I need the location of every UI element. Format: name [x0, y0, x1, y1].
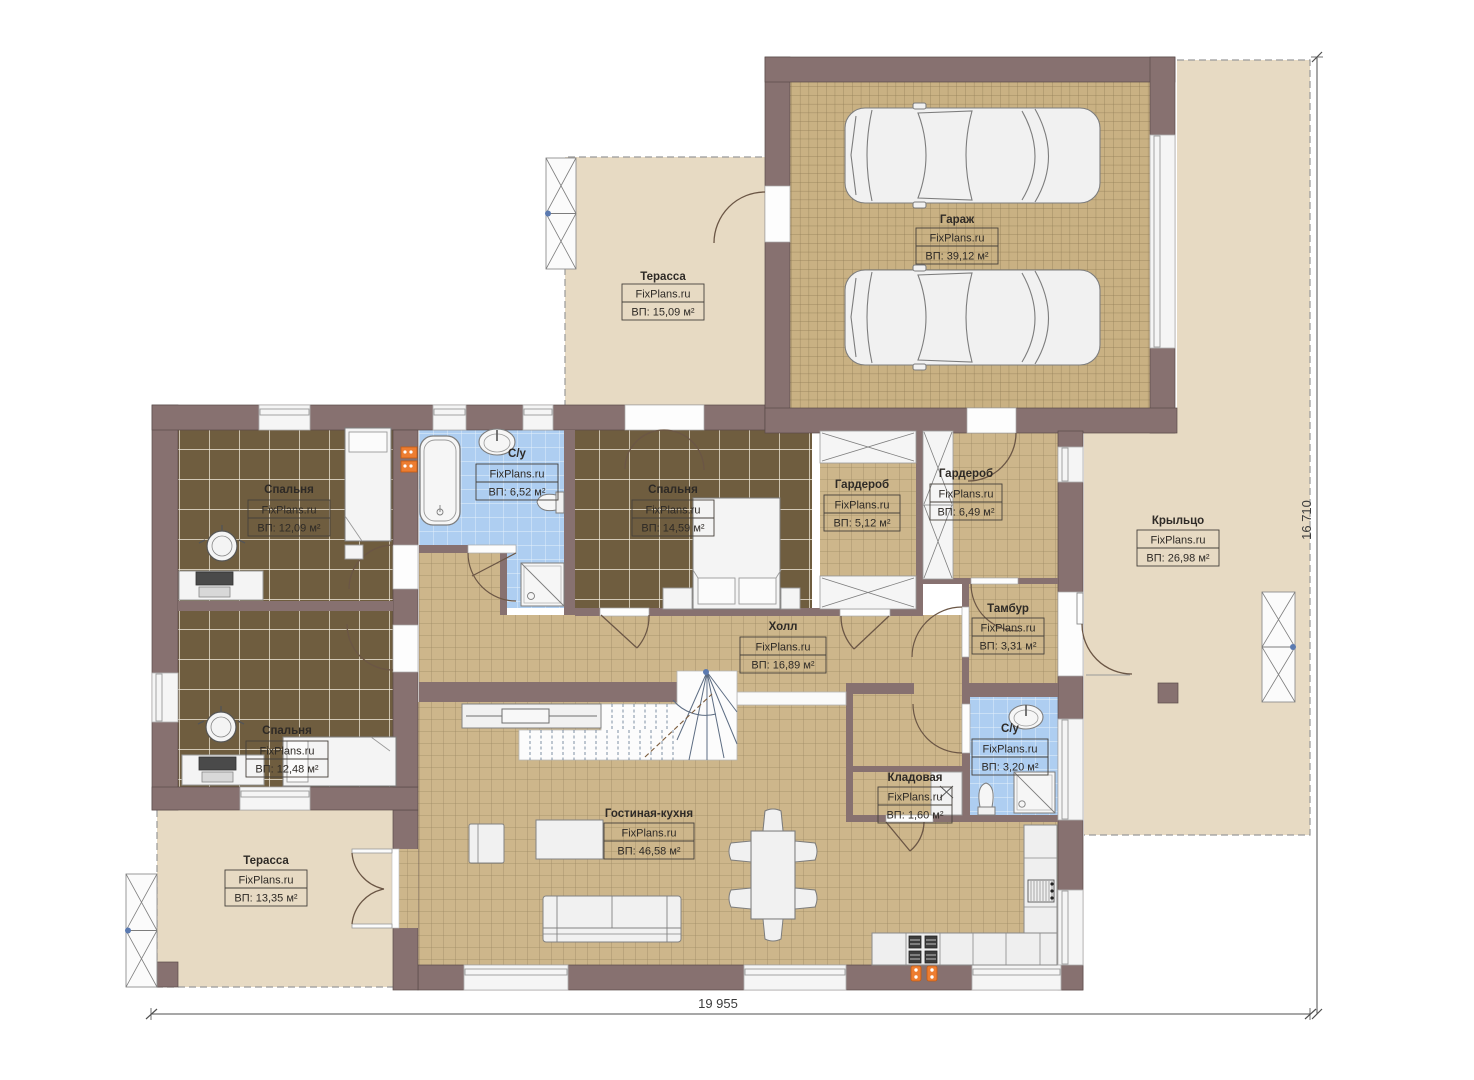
- svg-text:ВП: 5,12 м²: ВП: 5,12 м²: [833, 518, 890, 530]
- svg-text:Тамбур: Тамбур: [987, 603, 1029, 615]
- svg-text:Спальня: Спальня: [648, 484, 698, 496]
- svg-text:ВП: 3,20 м²: ВП: 3,20 м²: [981, 762, 1038, 774]
- svg-text:FixPlans.ru: FixPlans.ru: [259, 746, 314, 758]
- svg-text:FixPlans.ru: FixPlans.ru: [238, 875, 293, 887]
- svg-text:ВП: 12,48 м²: ВП: 12,48 м²: [255, 764, 319, 776]
- svg-text:ВП: 3,31 м²: ВП: 3,31 м²: [979, 641, 1036, 653]
- svg-text:Терасса: Терасса: [243, 855, 289, 867]
- svg-text:Гардероб: Гардероб: [835, 479, 889, 491]
- svg-text:ВП: 1,60 м²: ВП: 1,60 м²: [886, 810, 943, 822]
- svg-text:FixPlans.ru: FixPlans.ru: [982, 744, 1037, 756]
- svg-text:Спальня: Спальня: [262, 725, 312, 737]
- svg-text:ВП: 15,09 м²: ВП: 15,09 м²: [631, 307, 695, 319]
- svg-text:Гараж: Гараж: [940, 214, 975, 226]
- svg-text:Кладовая: Кладовая: [887, 772, 942, 784]
- svg-text:С/у: С/у: [1001, 723, 1020, 735]
- svg-text:Гостиная-кухня: Гостиная-кухня: [605, 808, 693, 820]
- svg-text:Крыльцо: Крыльцо: [1152, 515, 1204, 527]
- svg-text:Спальня: Спальня: [264, 484, 314, 496]
- svg-text:19 955: 19 955: [698, 996, 738, 1011]
- svg-text:FixPlans.ru: FixPlans.ru: [621, 828, 676, 840]
- svg-text:FixPlans.ru: FixPlans.ru: [261, 505, 316, 517]
- svg-text:FixPlans.ru: FixPlans.ru: [980, 623, 1035, 635]
- svg-text:FixPlans.ru: FixPlans.ru: [489, 469, 544, 481]
- svg-text:ВП: 6,49 м²: ВП: 6,49 м²: [937, 507, 994, 519]
- svg-text:FixPlans.ru: FixPlans.ru: [938, 489, 993, 501]
- svg-text:FixPlans.ru: FixPlans.ru: [887, 792, 942, 804]
- svg-text:FixPlans.ru: FixPlans.ru: [929, 233, 984, 245]
- svg-text:FixPlans.ru: FixPlans.ru: [1150, 535, 1205, 547]
- svg-text:ВП: 13,35 м²: ВП: 13,35 м²: [234, 893, 298, 905]
- svg-text:Холл: Холл: [769, 621, 798, 633]
- svg-text:ВП: 16,89 м²: ВП: 16,89 м²: [751, 660, 815, 672]
- svg-text:16 710: 16 710: [1299, 500, 1314, 540]
- svg-text:ВП: 39,12 м²: ВП: 39,12 м²: [925, 251, 989, 263]
- svg-text:FixPlans.ru: FixPlans.ru: [635, 289, 690, 301]
- svg-text:FixPlans.ru: FixPlans.ru: [645, 505, 700, 517]
- svg-text:Гардероб: Гардероб: [939, 468, 993, 480]
- svg-text:ВП: 14,59 м²: ВП: 14,59 м²: [641, 523, 705, 535]
- svg-text:С/у: С/у: [508, 448, 527, 460]
- svg-text:FixPlans.ru: FixPlans.ru: [834, 500, 889, 512]
- svg-text:ВП: 12,09 м²: ВП: 12,09 м²: [257, 523, 321, 535]
- svg-text:FixPlans.ru: FixPlans.ru: [755, 642, 810, 654]
- svg-text:ВП: 46,58 м²: ВП: 46,58 м²: [617, 846, 681, 858]
- svg-text:ВП: 26,98 м²: ВП: 26,98 м²: [1146, 553, 1210, 565]
- svg-text:Терасса: Терасса: [640, 271, 686, 283]
- svg-text:ВП: 6,52 м²: ВП: 6,52 м²: [488, 487, 545, 499]
